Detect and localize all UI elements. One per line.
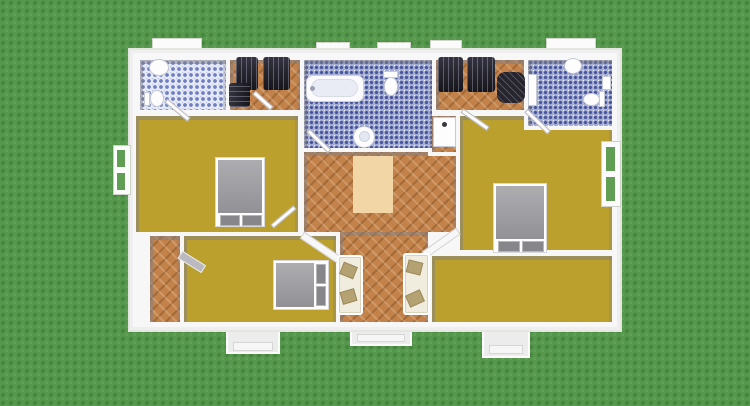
bathtub-basin bbox=[311, 79, 358, 97]
toilet-right-bowl[interactable] bbox=[583, 93, 600, 106]
left-porch-step bbox=[233, 342, 273, 351]
towel-rail bbox=[528, 74, 537, 106]
front-entry-step bbox=[357, 334, 405, 342]
bed-single-mattress bbox=[276, 263, 314, 307]
toilet-left-bowl[interactable] bbox=[150, 90, 164, 107]
sink-right[interactable] bbox=[564, 58, 582, 74]
sink-left[interactable] bbox=[149, 59, 169, 76]
window-left-pane-2 bbox=[115, 171, 127, 192]
bed-master-pillow-1 bbox=[498, 241, 520, 252]
bed-single-pillow-1 bbox=[316, 264, 326, 284]
floorplan-canvas bbox=[0, 0, 750, 406]
shelf-right-bathroom bbox=[602, 76, 611, 90]
toilet-right-tank bbox=[599, 91, 605, 107]
bed-double-pillow-2 bbox=[242, 215, 262, 226]
wardrobe-4[interactable] bbox=[438, 57, 463, 92]
shower-knob bbox=[442, 122, 447, 127]
room-right-lower[interactable] bbox=[432, 256, 612, 322]
rug[interactable] bbox=[353, 156, 393, 213]
wardrobe-2[interactable] bbox=[263, 57, 290, 90]
window-right-pane-2 bbox=[604, 175, 617, 203]
bed-double-mattress bbox=[218, 160, 262, 213]
bed-single-pillow-2 bbox=[316, 286, 326, 306]
window-right-pane-1 bbox=[604, 145, 617, 173]
right-porch-step bbox=[489, 345, 523, 354]
toilet-central-bowl[interactable] bbox=[384, 77, 398, 96]
window-left-pane-1 bbox=[115, 148, 127, 169]
pedestal-sink-basin bbox=[359, 131, 370, 142]
bed-double-pillow-1 bbox=[220, 215, 240, 226]
bed-master-mattress bbox=[496, 186, 544, 239]
wardrobe-5[interactable] bbox=[467, 57, 495, 92]
bathtub-faucet bbox=[310, 86, 315, 91]
dark-armchair[interactable] bbox=[497, 72, 525, 103]
room-corridor[interactable] bbox=[150, 236, 180, 322]
wardrobe-3[interactable] bbox=[229, 83, 250, 107]
bed-master-pillow-2 bbox=[522, 241, 544, 252]
